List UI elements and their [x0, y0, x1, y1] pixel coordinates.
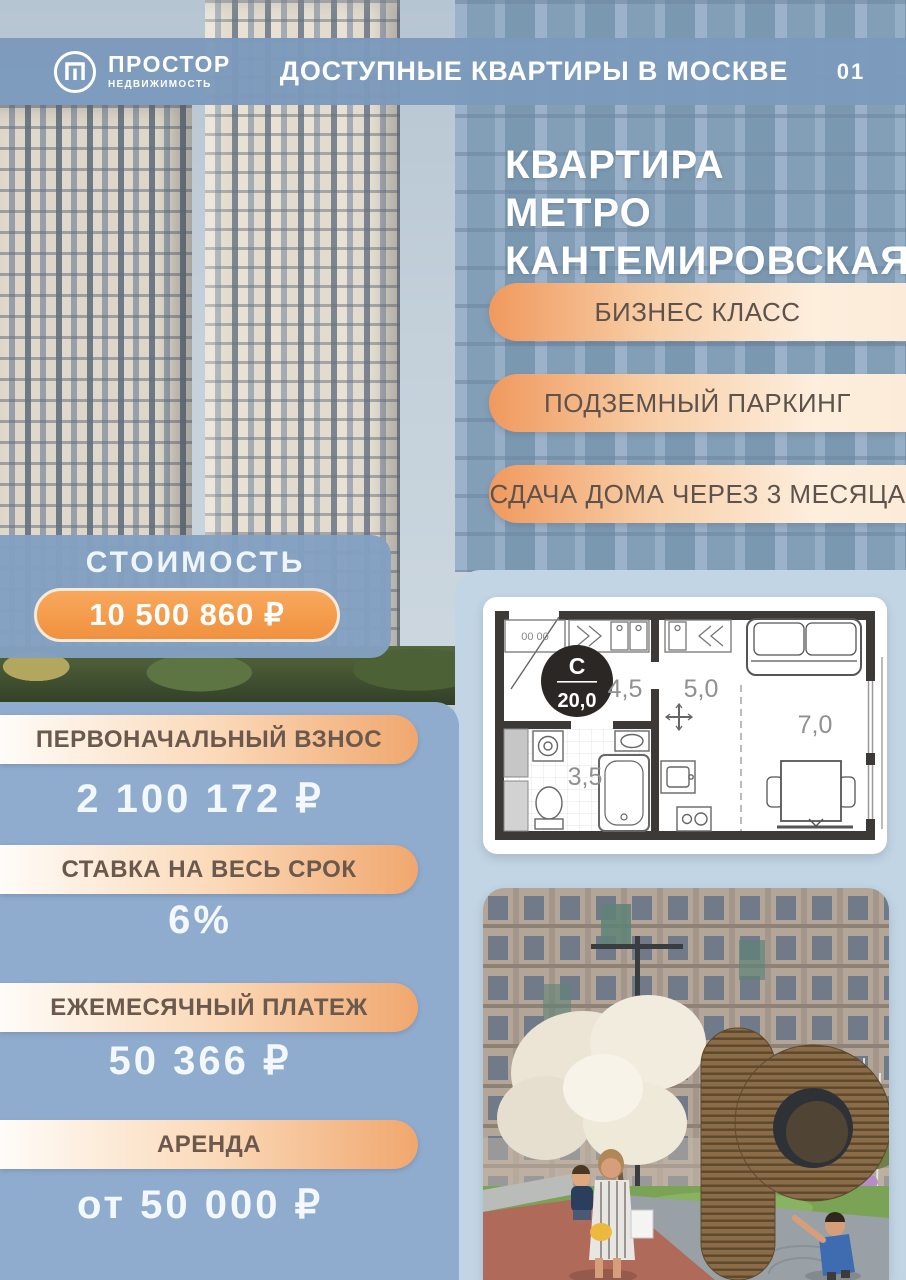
mortgage-value-rate: 6%: [0, 898, 400, 943]
mortgage-value-monthly-payment: 50 366 ₽: [0, 1038, 400, 1084]
type-label: С: [569, 653, 586, 679]
flyer-page: ПРОСТОР НЕДВИЖИМОСТЬ ДОСТУПНЫЕ КВАРТИРЫ …: [0, 0, 906, 1280]
feature-pill-label: ПОДЗЕМНЫЙ ПАРКИНГ: [544, 388, 851, 419]
courtyard-photo: [483, 888, 889, 1280]
logo-text: ПРОСТОР НЕДВИЖИМОСТЬ: [108, 53, 231, 90]
feature-pill-business-class: БИЗНЕС КЛАСС: [489, 283, 906, 341]
area-kitchen: 5,0: [684, 675, 719, 703]
mortgage-label-text: ЕЖЕМЕСЯЧНЫЙ ПЛАТЕЖ: [50, 994, 367, 1022]
mortgage-value-down-payment: 2 100 172 ₽: [0, 776, 400, 822]
floorplan-drawing: 00 00: [483, 597, 887, 854]
sink-icon: [615, 731, 649, 751]
mortgage-label-text: АРЕНДА: [157, 1131, 261, 1159]
sofa-icon: [747, 619, 861, 675]
feature-pill-label: СДАЧА ДОМА ЧЕРЕЗ 3 МЕСЯЦА: [489, 479, 905, 510]
page-title: ДОСТУПНЫЕ КВАРТИРЫ В МОСКВЕ: [272, 56, 796, 87]
mortgage-label-text: ПЕРВОНАЧАЛЬНЫЙ ВЗНОС: [36, 726, 382, 754]
area-living: 7,0: [798, 711, 833, 739]
hero-heading-line1: КВАРТИРА: [505, 141, 906, 189]
logo-icon: [52, 49, 98, 95]
mortgage-label-text: СТАВКА НА ВЕСЬ СРОК: [62, 856, 357, 884]
feature-pill-completion: СДАЧА ДОМА ЧЕРЕЗ 3 МЕСЯЦА: [489, 465, 906, 523]
mortgage-label-monthly-payment: ЕЖЕМЕСЯЧНЫЙ ПЛАТЕЖ: [0, 983, 418, 1032]
floorplan-card: 00 00: [483, 597, 887, 854]
toilet-icon: [535, 787, 563, 829]
vent-icon: [666, 704, 692, 730]
mortgage-label-rent: АРЕНДА: [0, 1120, 418, 1169]
mortgage-panel: ПЕРВОНАЧАЛЬНЫЙ ВЗНОС 2 100 172 ₽ СТАВКА …: [0, 702, 459, 1280]
logo: ПРОСТОР НЕДВИЖИМОСТЬ: [52, 49, 272, 95]
mortgage-value-rent: от 50 000 ₽: [0, 1182, 400, 1228]
area-bathroom: 3,5: [568, 763, 603, 791]
price-value: 10 500 860 ₽: [89, 597, 285, 633]
page-number: 01: [796, 59, 906, 85]
hero-heading: КВАРТИРА МЕТРО КАНТЕМИРОВСКАЯ: [505, 141, 906, 285]
price-panel: СТОИМОСТЬ 10 500 860 ₽: [0, 535, 391, 658]
price-value-pill: 10 500 860 ₽: [34, 588, 340, 642]
window-icon: [864, 657, 882, 829]
price-label: СТОИМОСТЬ: [0, 546, 391, 580]
feature-pill-label: БИЗНЕС КЛАСС: [594, 297, 800, 328]
child-held: [571, 1165, 593, 1220]
bathtub-icon: [599, 755, 649, 831]
area-hallway: 4,5: [608, 675, 643, 703]
logo-title: ПРОСТОР: [108, 53, 231, 76]
mortgage-label-rate: СТАВКА НА ВЕСЬ СРОК: [0, 845, 418, 894]
type-badge: С 20,0: [541, 645, 613, 717]
logo-subtitle: НЕДВИЖИМОСТЬ: [108, 79, 231, 90]
kitchen-sink-icon: [661, 761, 695, 793]
total-area: 20,0: [558, 690, 597, 712]
hero-heading-line2: МЕТРО: [505, 189, 906, 237]
feature-pill-underground-parking: ПОДЗЕМНЫЙ ПАРКИНГ: [489, 374, 906, 432]
header-bar: ПРОСТОР НЕДВИЖИМОСТЬ ДОСТУПНЫЕ КВАРТИРЫ …: [0, 38, 906, 105]
courtyard-illustration: [483, 888, 889, 1280]
stove-icon: [677, 807, 711, 831]
mortgage-label-down-payment: ПЕРВОНАЧАЛЬНЫЙ ВЗНОС: [0, 715, 418, 764]
closet-marking: 00 00: [521, 631, 549, 643]
table-icon: [767, 761, 855, 821]
washing-machine-icon: [533, 731, 563, 761]
hero-heading-line3: КАНТЕМИРОВСКАЯ: [505, 237, 906, 285]
